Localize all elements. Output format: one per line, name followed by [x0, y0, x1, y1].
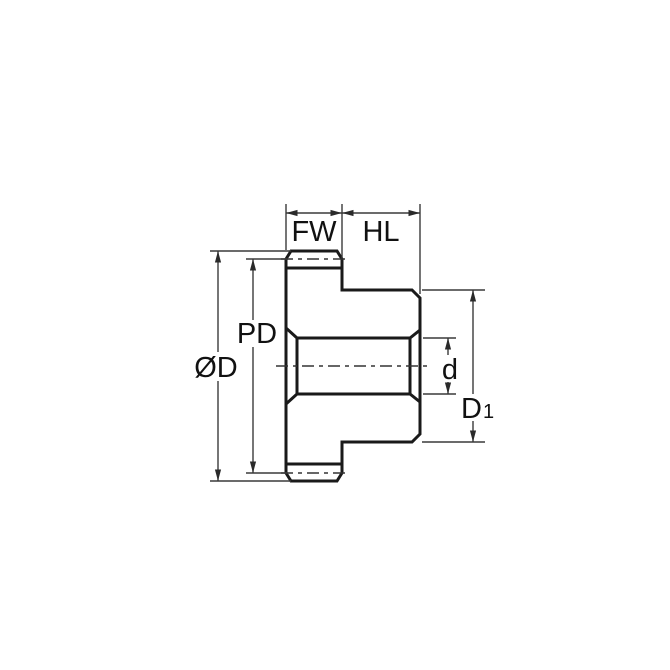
- gear-cross-section-diagram: FW HL ØD PD d D 1: [0, 0, 670, 670]
- drawing-canvas: FW HL ØD PD d D 1: [0, 0, 670, 670]
- label-face-width: FW: [291, 216, 337, 248]
- label-pitch-diameter: PD: [237, 318, 277, 350]
- gear-body-lower: [286, 394, 420, 464]
- hl-dimension: HL: [342, 204, 420, 294]
- label-bore-diameter: d: [442, 354, 458, 386]
- d-dimension: d: [423, 338, 458, 394]
- label-hub-diameter: D: [461, 393, 482, 425]
- label-hub-diameter-subscript: 1: [483, 401, 494, 423]
- label-outside-diameter: ØD: [194, 352, 238, 384]
- gear-body-upper: [286, 268, 420, 338]
- label-hub-length: HL: [362, 216, 399, 248]
